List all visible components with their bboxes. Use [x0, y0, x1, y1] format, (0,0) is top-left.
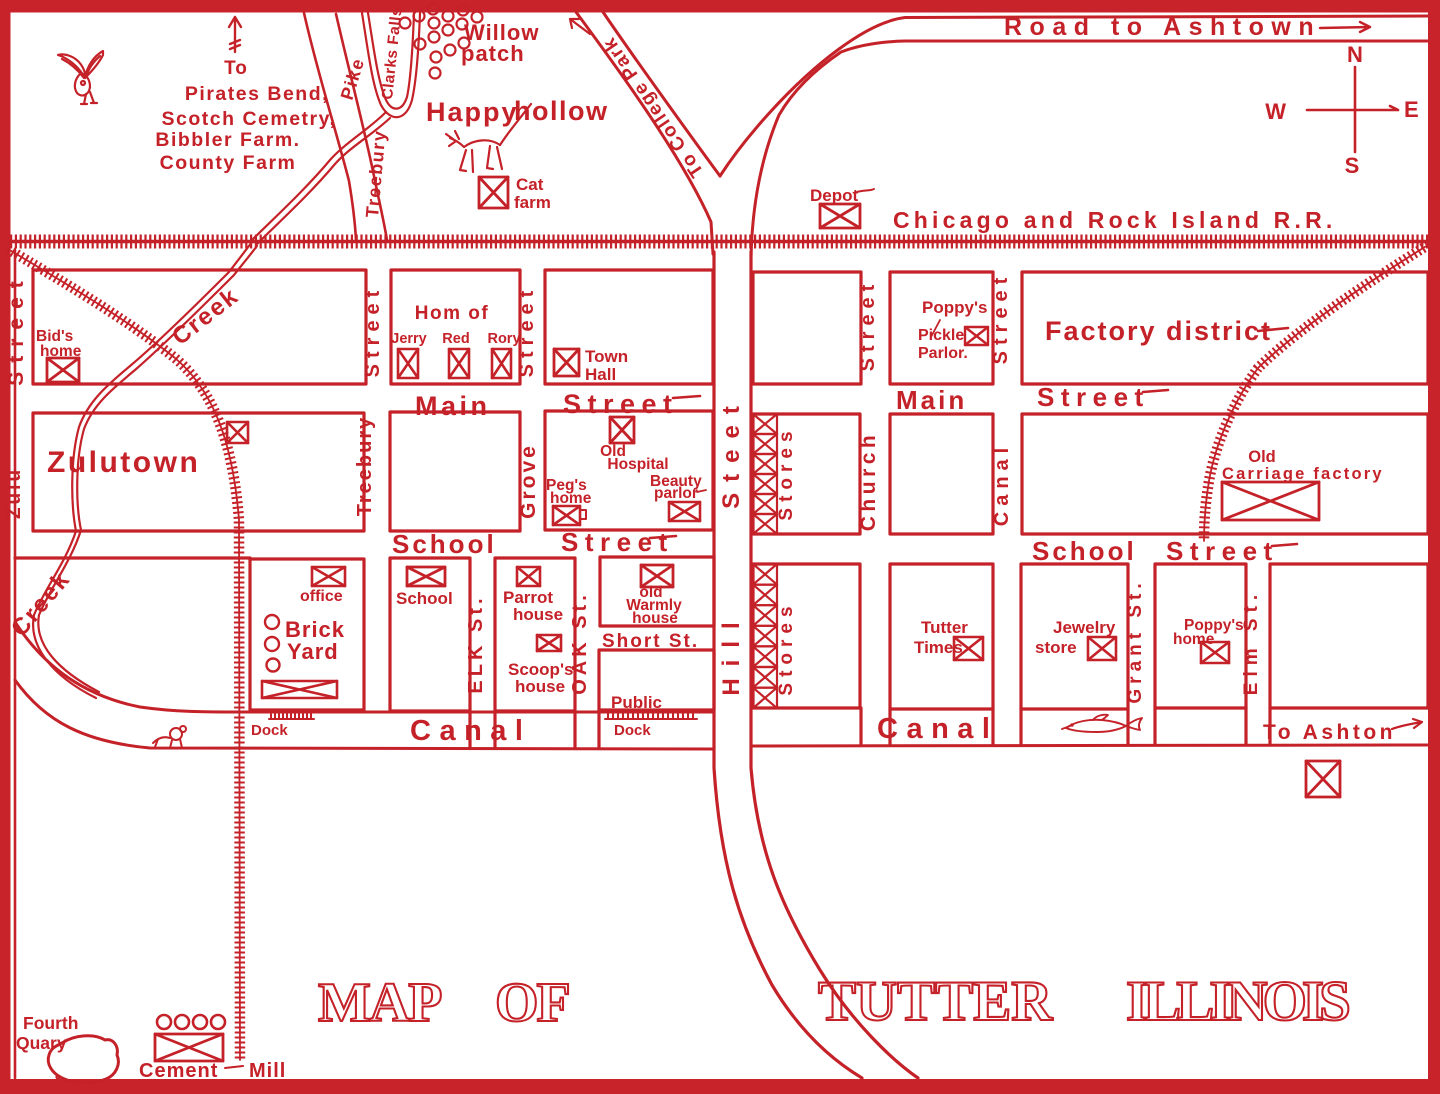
svg-text:ILLINOIS: ILLINOIS — [1126, 970, 1349, 1033]
svg-text:Red: Red — [442, 331, 469, 347]
svg-text:Street: Street — [563, 389, 679, 419]
svg-text:Hom of: Hom of — [415, 303, 489, 324]
svg-text:Jerry: Jerry — [391, 331, 426, 347]
svg-text:School: School — [1032, 536, 1137, 566]
svg-text:Road to Ashtown: Road to Ashtown — [1004, 13, 1321, 41]
svg-text:Parlor.: Parlor. — [918, 345, 968, 362]
svg-text:Street: Street — [1166, 536, 1279, 566]
svg-text:MAP: MAP — [318, 972, 441, 1034]
svg-text:Street: Street — [362, 285, 384, 378]
svg-text:Canal: Canal — [991, 442, 1013, 526]
svg-text:Elm St.: Elm St. — [1241, 589, 1262, 695]
svg-text:TUTTER: TUTTER — [818, 970, 1053, 1033]
svg-text:Hospital: Hospital — [607, 456, 668, 473]
svg-text:S: S — [1345, 153, 1360, 178]
svg-text:Street: Street — [1037, 382, 1150, 412]
svg-text:Main: Main — [896, 385, 967, 415]
svg-text:Scotch Cemetry,: Scotch Cemetry, — [162, 108, 337, 130]
svg-text:Bibbler Farm.: Bibbler Farm. — [155, 129, 300, 151]
svg-text:To: To — [224, 58, 248, 79]
svg-text:Grove: Grove — [517, 443, 540, 519]
svg-text:Fourth: Fourth — [23, 1013, 78, 1033]
svg-text:Dock: Dock — [614, 722, 651, 739]
svg-text:Rory: Rory — [487, 331, 520, 347]
svg-text:Dock: Dock — [251, 722, 288, 739]
svg-text:Treebury: Treebury — [354, 416, 376, 516]
svg-text:hollow: hollow — [514, 96, 608, 126]
svg-text:Stores: Stores — [776, 425, 797, 520]
svg-text:Street: Street — [5, 272, 28, 386]
svg-text:Street: Street — [990, 272, 1012, 365]
svg-text:Chicago and Rock Island R.R.: Chicago and Rock Island R.R. — [893, 207, 1337, 233]
svg-text:OAK St.: OAK St. — [569, 591, 591, 695]
svg-text:Tutter: Tutter — [921, 618, 968, 637]
svg-text:parlor: parlor — [654, 485, 698, 502]
svg-text:Mill: Mill — [249, 1060, 286, 1082]
svg-text:Depot: Depot — [810, 186, 859, 205]
svg-text:Hall: Hall — [585, 365, 616, 384]
svg-text:School: School — [396, 589, 453, 608]
svg-text:Stores: Stores — [776, 600, 797, 695]
svg-text:Canal: Canal — [877, 713, 998, 745]
svg-text:Church: Church — [857, 431, 880, 532]
svg-text:patch: patch — [461, 41, 525, 66]
svg-text:N: N — [1347, 42, 1363, 67]
svg-text:Zulu: Zulu — [4, 467, 25, 519]
svg-text:School: School — [392, 529, 497, 559]
svg-text:OF: OF — [495, 972, 569, 1034]
svg-text:Pickle: Pickle — [918, 327, 964, 344]
svg-text:Street: Street — [561, 527, 674, 557]
svg-text:Carriage factory: Carriage factory — [1222, 465, 1384, 483]
svg-text:house: house — [515, 677, 565, 696]
svg-text:Hill: Hill — [718, 610, 745, 695]
svg-text:Times: Times — [914, 638, 963, 657]
svg-text:Street: Street — [857, 279, 879, 372]
svg-text:Happy: Happy — [426, 97, 519, 127]
svg-text:Cement: Cement — [139, 1060, 218, 1082]
svg-text:E: E — [1404, 97, 1419, 122]
svg-text:home: home — [1173, 631, 1215, 648]
svg-text:farm: farm — [514, 193, 551, 212]
svg-text:Public: Public — [611, 693, 662, 712]
svg-text:County Farm: County Farm — [160, 152, 297, 174]
svg-text:house: house — [513, 605, 563, 624]
svg-text:Short St.: Short St. — [602, 631, 699, 652]
svg-text:Zulutown: Zulutown — [47, 446, 200, 479]
svg-text:Yard: Yard — [287, 639, 339, 664]
svg-text:Poppy's: Poppy's — [922, 298, 987, 317]
svg-text:Pirates Bend,: Pirates Bend, — [185, 83, 329, 105]
svg-text:Canal: Canal — [410, 715, 531, 747]
svg-text:Cat: Cat — [516, 175, 544, 194]
svg-text:Steet: Steet — [718, 395, 745, 509]
svg-text:office: office — [300, 588, 343, 605]
svg-text:Town: Town — [585, 347, 628, 366]
svg-text:home: home — [550, 490, 592, 507]
svg-text:Main: Main — [415, 391, 491, 421]
svg-text:Grant St.: Grant St. — [1125, 578, 1146, 703]
svg-text:Old: Old — [1248, 448, 1276, 466]
svg-text:Jewelry: Jewelry — [1053, 618, 1116, 637]
svg-text:W: W — [1265, 99, 1286, 124]
svg-text:store: store — [1035, 638, 1077, 657]
svg-text:To Ashton: To Ashton — [1263, 721, 1396, 744]
svg-text:house: house — [632, 610, 678, 627]
svg-text:ELK St.: ELK St. — [465, 594, 487, 693]
svg-text:Factory district: Factory district — [1045, 316, 1272, 346]
